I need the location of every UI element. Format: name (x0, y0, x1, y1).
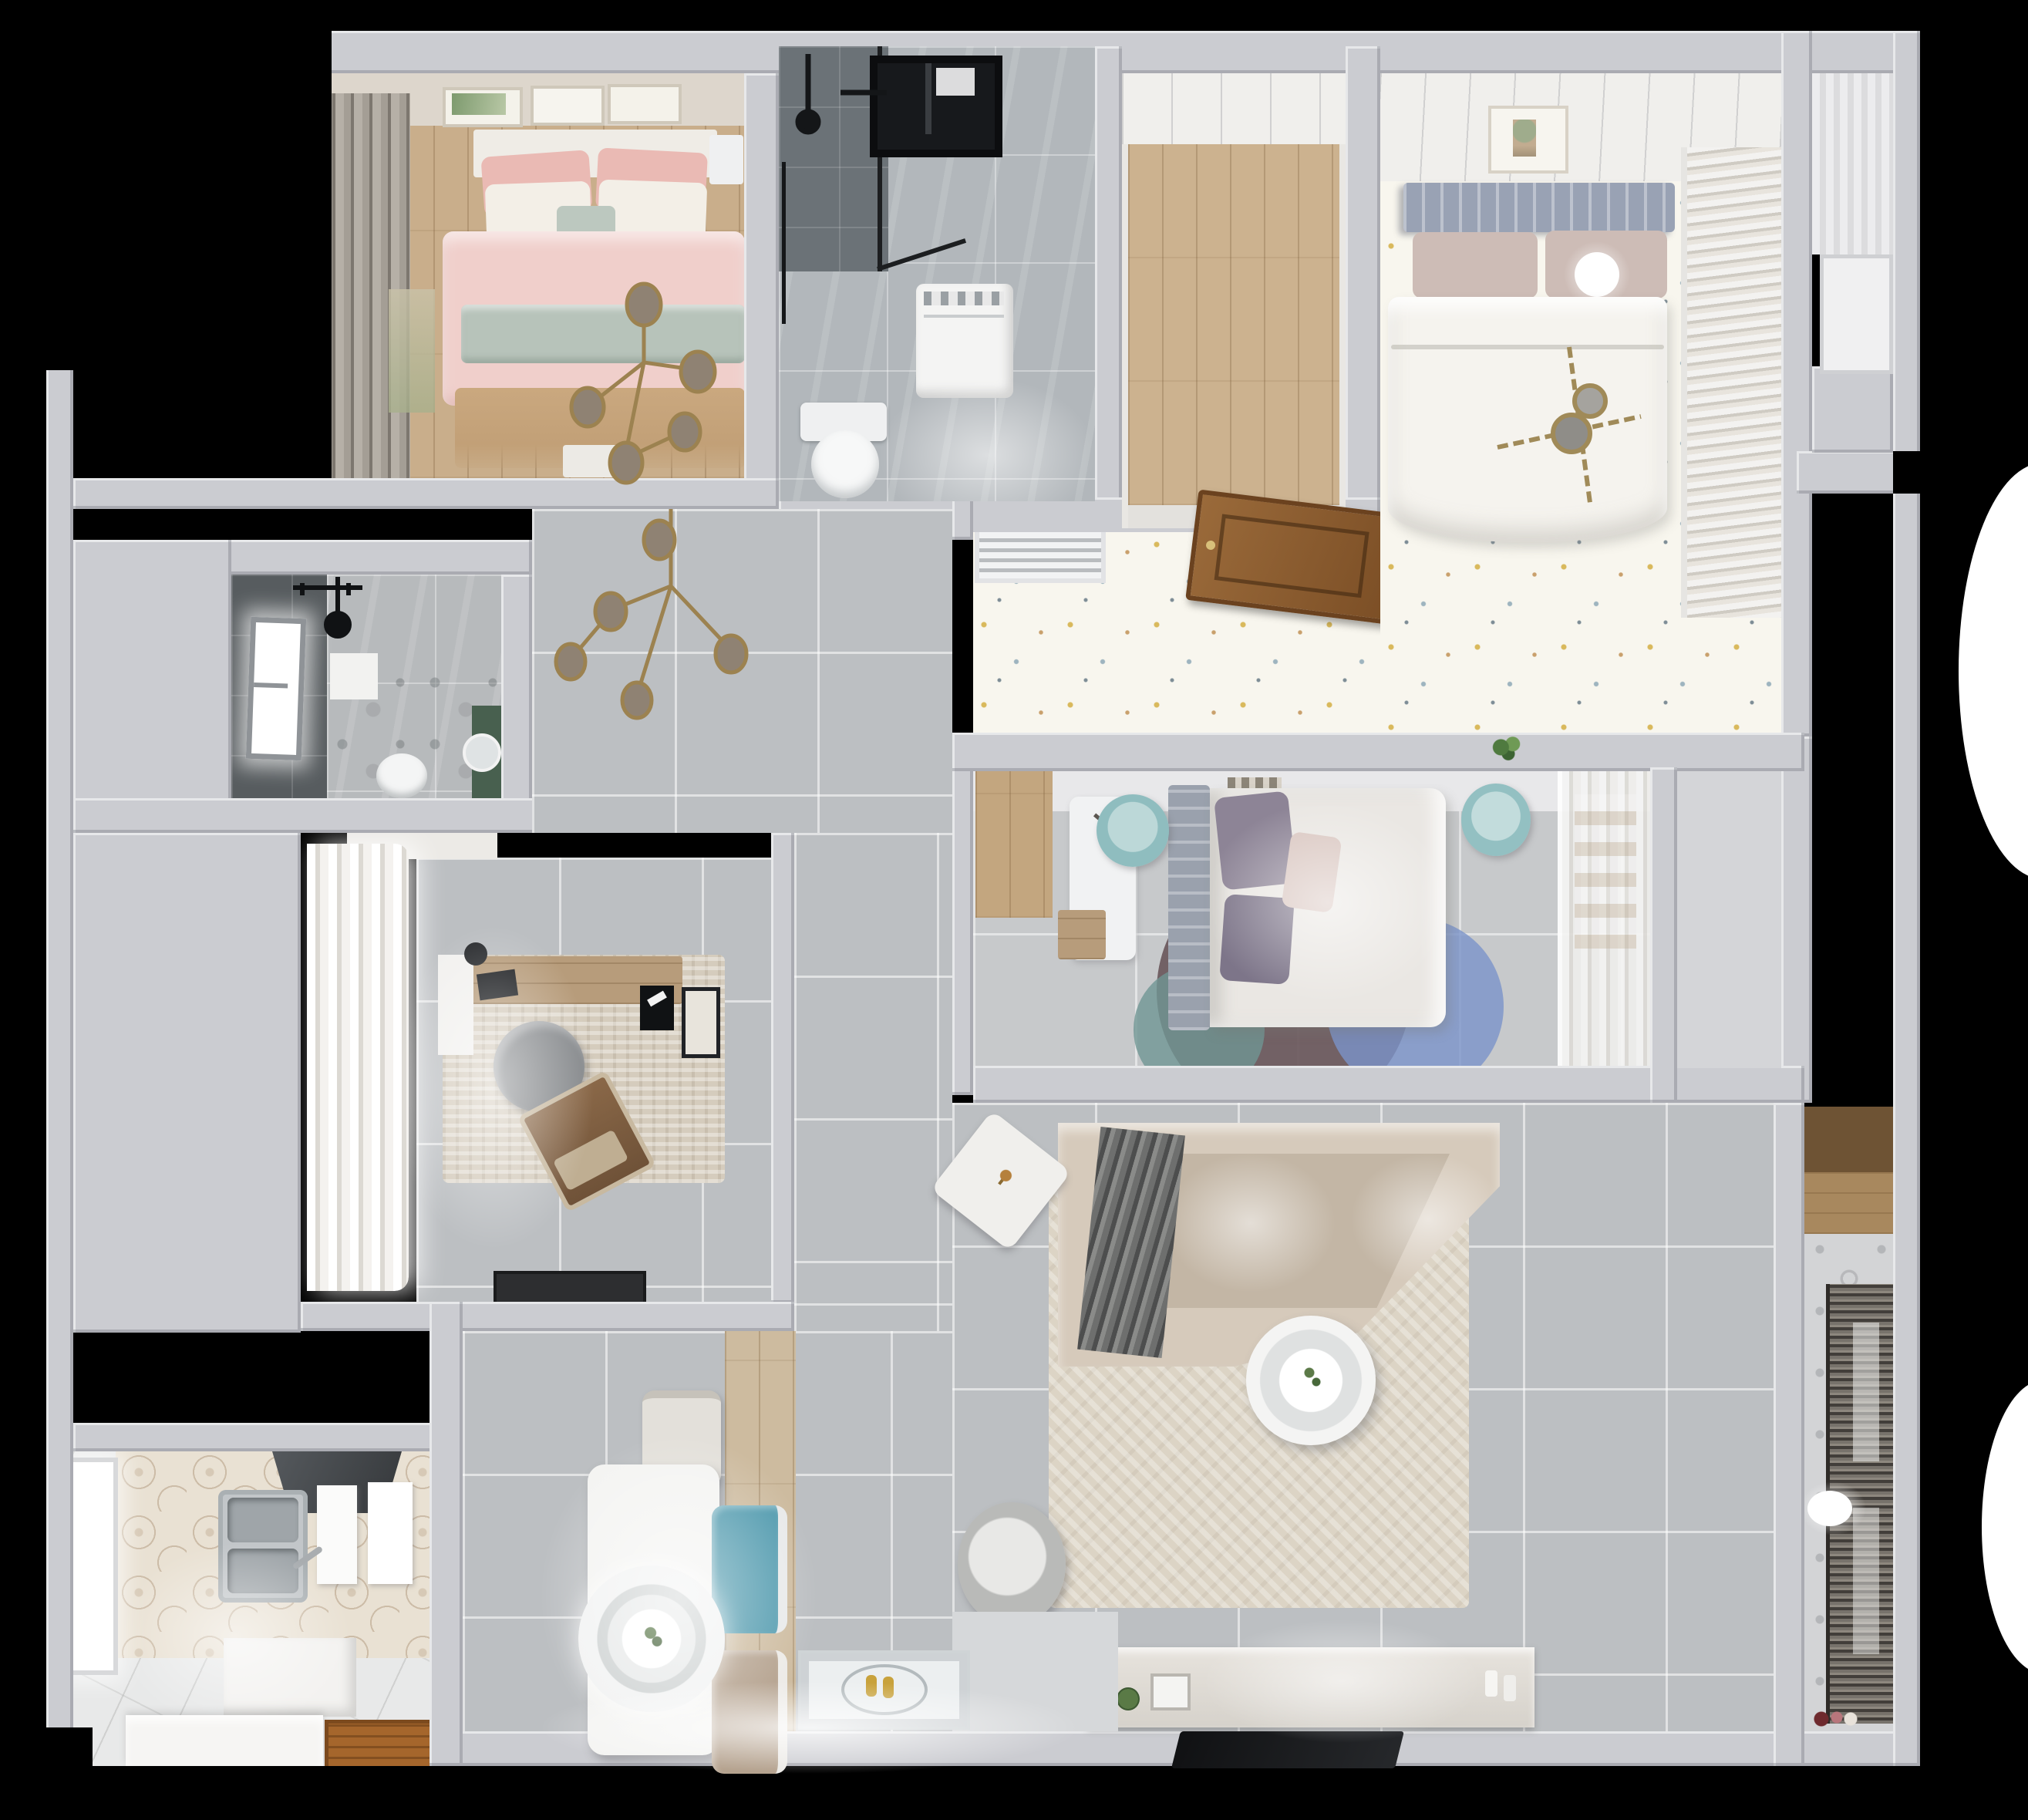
teal-stool-2 (1461, 784, 1531, 856)
art-frame-2 (531, 86, 605, 126)
pendant-ring-lamp (578, 1566, 725, 1712)
sofa-throw-dark (1077, 1127, 1185, 1358)
hallway-floor-mid (794, 833, 952, 1331)
stool-spoon-icon (991, 1166, 1016, 1191)
bedroom-master (1380, 73, 1781, 733)
entry-doormat (798, 1650, 970, 1730)
kitchen-sink (218, 1490, 308, 1603)
bed1-nightstand (709, 135, 743, 184)
kitchen (73, 1451, 430, 1766)
window-glint (936, 68, 975, 96)
bathroom-ensuite (779, 46, 1095, 501)
bed2-drawer-unit (1058, 910, 1106, 959)
wall-foyer-right (1781, 736, 1812, 1103)
wall-study-right (771, 833, 794, 1303)
coffee-table (1246, 1316, 1376, 1445)
bed1-sage-band (461, 305, 744, 363)
bedroom-pink (332, 73, 744, 478)
floorplan-stage (0, 0, 2028, 1820)
balcony-north (1812, 73, 1893, 254)
balcony-north-door (1820, 254, 1893, 374)
render-artifact-blob-2 (1982, 1380, 2028, 1673)
entry-door-knob-icon (1205, 540, 1215, 550)
cutting-board-2 (368, 1482, 413, 1584)
bed2-wood-niche (975, 771, 1053, 918)
wall-master-right (1781, 31, 1812, 736)
wall-plant-icon (1490, 731, 1527, 763)
hallway-floor-upper (532, 509, 952, 833)
washer-controls (924, 292, 1004, 305)
wall-kitchen-top (73, 1423, 463, 1451)
wall-living-balcony (1774, 1103, 1804, 1766)
border-notch-topleft-1 (0, 0, 116, 370)
master-wardrobe (1681, 147, 1781, 618)
master-art-plant-icon (1513, 120, 1536, 157)
bed2-pillow-purple-1 (1214, 790, 1297, 890)
render-artifact-blob-1 (1959, 463, 2028, 879)
kitchen-counter (224, 1638, 356, 1717)
bath2-mirror (463, 733, 501, 772)
sink-basin-1 (227, 1498, 298, 1542)
console-candles-icon (1485, 1670, 1497, 1697)
art-frame-1 (443, 87, 523, 127)
entry-floor (952, 1612, 1118, 1731)
study-art-feather-icon (647, 991, 667, 1007)
study-art-black (640, 986, 674, 1030)
toilet-1-bowl (811, 430, 879, 498)
toilet-2 (376, 753, 427, 798)
bed2-pillow-purple-2 (1219, 894, 1295, 985)
wall-kitchen-right (430, 1302, 463, 1766)
wall-closet-master (1346, 46, 1380, 540)
tub-chair-gray (958, 1502, 1066, 1626)
entry-door-panel (1214, 514, 1369, 598)
wall-bed2-foyer (1650, 767, 1677, 1103)
study-doormat (494, 1271, 646, 1302)
bedroom-pink-curtains (332, 93, 410, 478)
balcony-wood-shelf (1804, 1172, 1893, 1234)
coffee-table-sprig-icon (1300, 1363, 1323, 1394)
wall-bath2-right (501, 575, 532, 833)
balcony-light-core (1807, 1491, 1852, 1526)
wall-outer-right (1893, 31, 1920, 1766)
washer-door-line (924, 315, 1004, 318)
study (301, 833, 771, 1302)
window-bathroom1 (870, 56, 1002, 157)
bed2-headboard (1168, 785, 1210, 1030)
tv-console (1087, 1647, 1534, 1727)
bath2-window (246, 617, 306, 760)
border-notch-topleft-2 (116, 0, 332, 73)
master-duvet-fold (1391, 345, 1664, 349)
master-headboard (1403, 183, 1675, 232)
study-shelf-black (682, 987, 720, 1058)
tv-panel (1171, 1731, 1404, 1768)
console-plant-icon (1117, 1687, 1140, 1710)
master-duvet (1388, 297, 1667, 542)
bed2-wardrobe-clothes (1575, 794, 1636, 949)
shower-glass-frame-2 (877, 238, 966, 271)
rack-window-light-2 (1853, 1508, 1879, 1654)
art-leaf-icon (452, 93, 506, 115)
doormat-motif (841, 1664, 928, 1715)
study-curtains (307, 844, 409, 1291)
border-bottomleft-step (46, 1727, 93, 1820)
bed1-bench (563, 445, 625, 477)
wall-bed2-top (952, 733, 1804, 771)
kitchen-wood-door (325, 1720, 430, 1766)
wall-bed1-bath1 (744, 73, 779, 509)
towel-bar-icon (782, 162, 786, 324)
art-frame-3 (608, 84, 682, 124)
laptop-icon (477, 969, 518, 1001)
balcony-toys-icon (1812, 1710, 1858, 1728)
lounge-chair-cushion (553, 1129, 628, 1191)
console-frames-icon (1150, 1673, 1191, 1710)
master-pillow-left (1413, 232, 1538, 298)
washing-machine (916, 284, 1013, 398)
desk-lamp-icon (464, 942, 487, 966)
bed2-pillow-blush (1282, 831, 1342, 913)
balcony-niche-dark (1804, 1107, 1893, 1172)
rack-window-light (1853, 1323, 1879, 1461)
wall-study-bottom (301, 1302, 794, 1331)
bed2-wardrobe (1558, 771, 1650, 1066)
window-mullion (925, 63, 931, 134)
wall-study-leftmass (73, 833, 301, 1333)
cutting-board-1 (317, 1485, 357, 1584)
closet-wood-floor (1128, 144, 1339, 505)
bedroom-second (973, 771, 1650, 1066)
teal-stool-1 (1097, 794, 1169, 867)
bathroom-guest (231, 575, 501, 798)
wall-bed2-bottom (973, 1066, 1804, 1103)
dining-chair-teal (712, 1505, 787, 1633)
bath2-shelf (330, 653, 378, 699)
kitchen-island-block (126, 1715, 323, 1766)
bath2-window-bar (254, 682, 288, 689)
wall-balconyN-fill (1812, 366, 1893, 453)
closet-top-band (1122, 73, 1346, 144)
wall-bed1-bottom (73, 478, 779, 509)
balcony-laundry (1804, 1107, 1893, 1731)
foyer-floor (1677, 771, 1781, 1068)
wall-bath1-closet (1095, 46, 1122, 544)
closet-walkin (1122, 73, 1346, 528)
sink-basin-2 (227, 1549, 298, 1593)
wall-bath2-leftmass (73, 540, 231, 833)
dining-chair-beige (712, 1650, 787, 1774)
bedroom-pink-window-view (389, 289, 435, 413)
kitchen-window (73, 1458, 118, 1675)
pendant-plant-icon (640, 1621, 666, 1655)
gold-slippers-icon (866, 1675, 877, 1697)
master-ceiling-light-core (1575, 252, 1619, 297)
ac-vent-grille (975, 532, 1106, 583)
wall-bed2-left (952, 767, 973, 1095)
master-art-frame (1488, 106, 1568, 174)
study-desk-return (438, 955, 473, 1055)
